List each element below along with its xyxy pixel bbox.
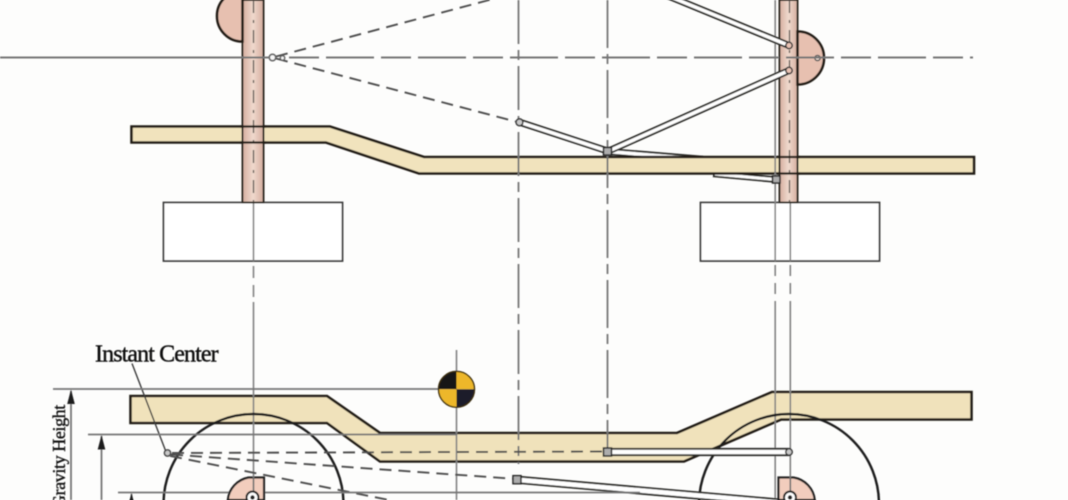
svg-text:Instant Center: Instant Center <box>95 342 219 368</box>
svg-text:Gravity Height: Gravity Height <box>49 405 69 500</box>
